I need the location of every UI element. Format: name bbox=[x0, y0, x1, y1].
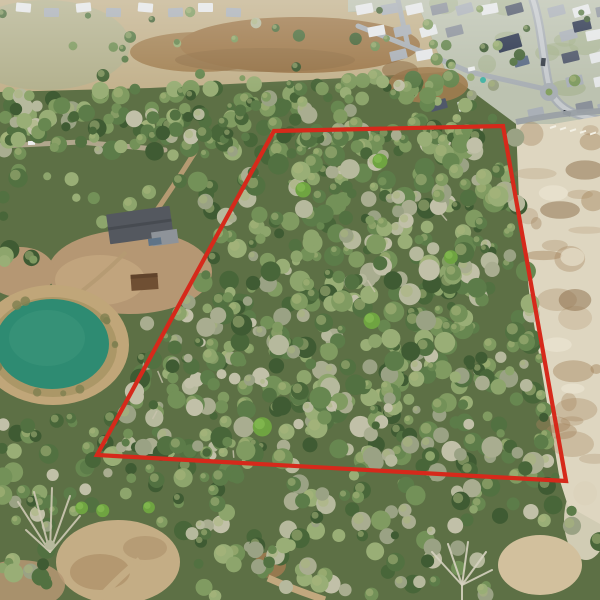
aerial-photo: Aerial view of wooded land parcel outlin… bbox=[0, 0, 600, 600]
haze-overlay bbox=[0, 0, 600, 90]
aerial-photo-stage: Aerial view of wooded land parcel outlin… bbox=[0, 0, 600, 600]
